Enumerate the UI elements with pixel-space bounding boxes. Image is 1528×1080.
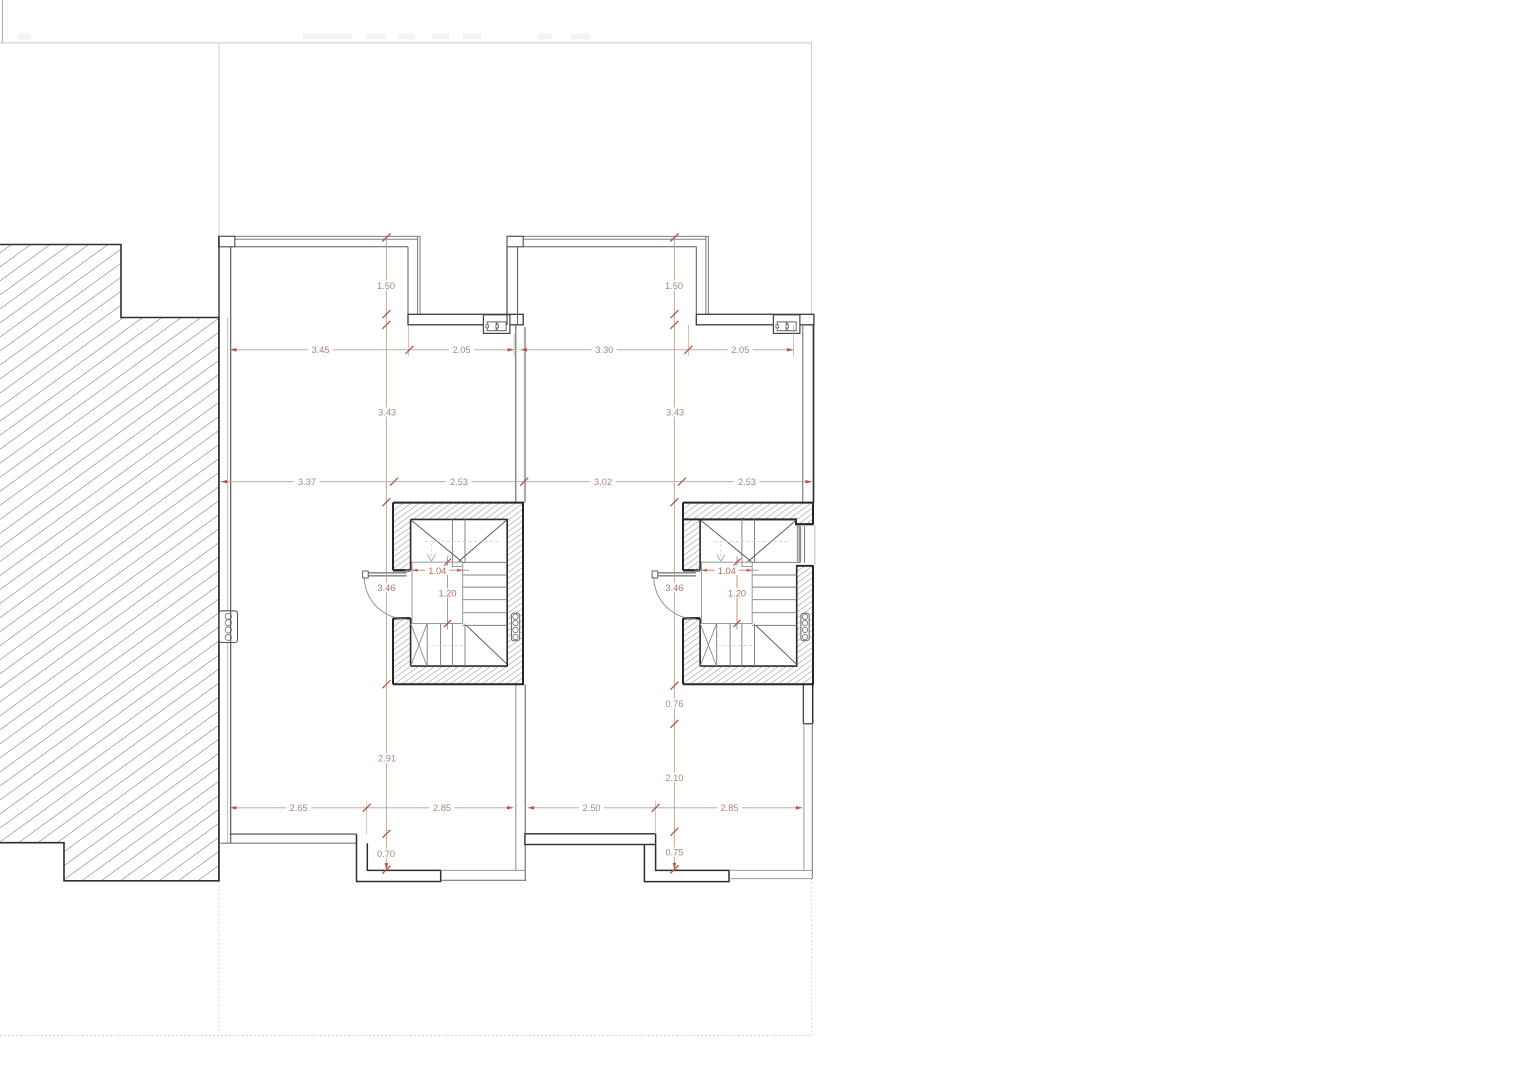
svg-text:2.10: 2.10 — [665, 773, 683, 783]
svg-text:3.46: 3.46 — [665, 583, 683, 593]
svg-text:0.70: 0.70 — [377, 849, 395, 859]
svg-text:2.05: 2.05 — [731, 345, 749, 355]
svg-text:2.65: 2.65 — [290, 803, 308, 813]
svg-text:1.20: 1.20 — [728, 589, 746, 599]
svg-text:3.43: 3.43 — [378, 408, 396, 418]
svg-text:2.85: 2.85 — [433, 803, 451, 813]
svg-text:2.50: 2.50 — [582, 803, 600, 813]
svg-text:2.91: 2.91 — [378, 754, 396, 764]
svg-text:0.76: 0.76 — [665, 699, 683, 709]
svg-text:3.37: 3.37 — [298, 477, 316, 487]
svg-text:1.04: 1.04 — [718, 566, 736, 576]
svg-text:2.05: 2.05 — [452, 345, 470, 355]
svg-text:3.43: 3.43 — [666, 408, 684, 418]
svg-text:1.50: 1.50 — [665, 281, 683, 291]
svg-text:1.20: 1.20 — [438, 589, 456, 599]
svg-text:3.46: 3.46 — [377, 583, 395, 593]
svg-text:3.02: 3.02 — [594, 477, 612, 487]
svg-text:2.53: 2.53 — [738, 477, 756, 487]
svg-text:2.53: 2.53 — [450, 477, 468, 487]
svg-text:1.50: 1.50 — [377, 281, 395, 291]
svg-text:3.45: 3.45 — [311, 345, 329, 355]
svg-text:2.85: 2.85 — [720, 803, 738, 813]
svg-text:1.04: 1.04 — [428, 566, 446, 576]
svg-text:0.75: 0.75 — [665, 848, 683, 858]
svg-text:3.30: 3.30 — [595, 345, 613, 355]
